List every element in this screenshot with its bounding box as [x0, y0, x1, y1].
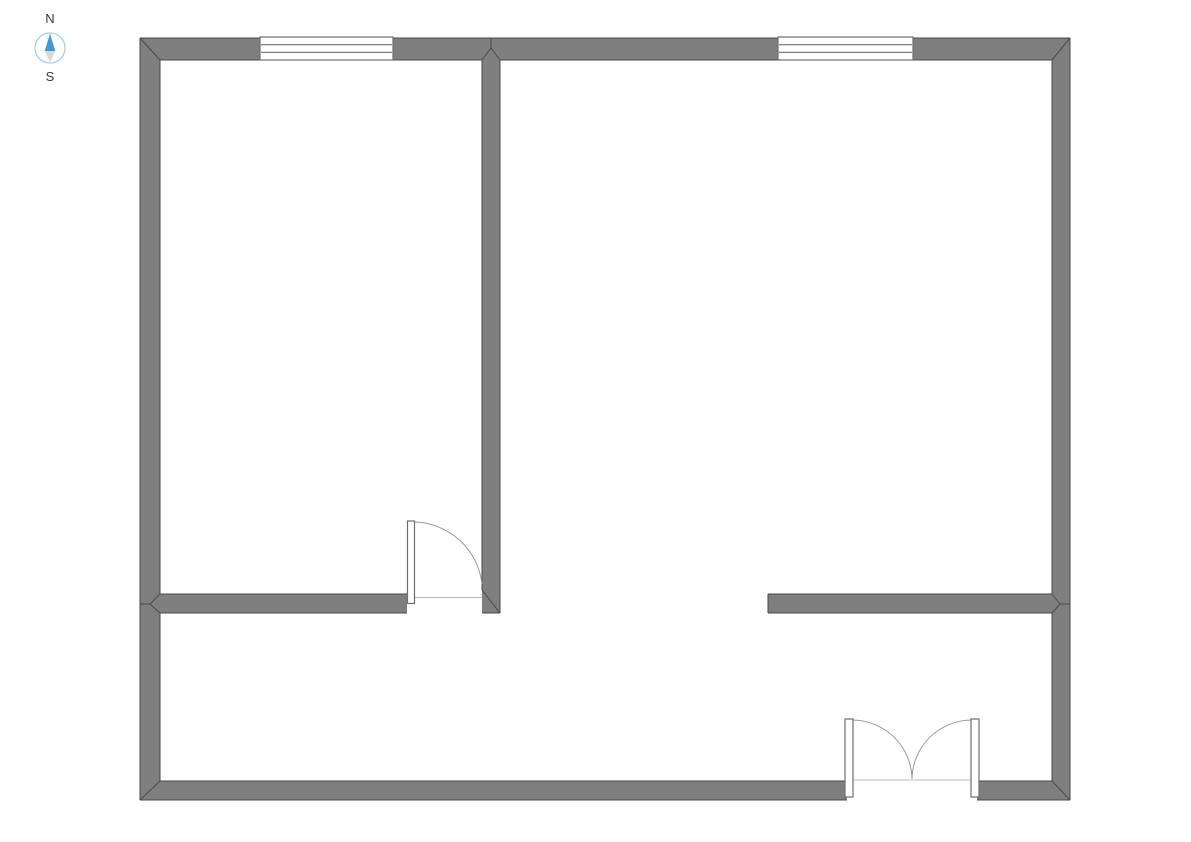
floorplan-page: { "compass": { "north_label": "N", "sout…: [0, 0, 1191, 842]
door-swing-arc-interior-single-0: [415, 522, 483, 584]
wall-middle-right: [768, 594, 1052, 613]
door-leaf-interior-single-0: [408, 521, 415, 604]
door-swing-arc-entry-double-1: [912, 720, 971, 779]
wall-west: [140, 38, 160, 800]
compass-south-label: S: [46, 69, 55, 84]
wall-center-vertical: [482, 38, 500, 613]
window-frame-north-left: [260, 37, 393, 60]
wall-south-right: [977, 781, 1070, 800]
door-swing-arc-entry-double-0: [853, 720, 912, 779]
door-leaf-entry-double-0: [845, 719, 853, 797]
compass-rose: N S: [22, 6, 78, 88]
door-leaf-entry-double-1: [971, 719, 979, 797]
wall-south-left: [140, 781, 847, 800]
wall-middle-left: [160, 594, 407, 613]
compass-north-label: N: [45, 11, 54, 26]
window-frame-north-right: [778, 37, 913, 60]
wall-east: [1052, 38, 1070, 800]
floorplan-canvas: [0, 0, 1191, 842]
